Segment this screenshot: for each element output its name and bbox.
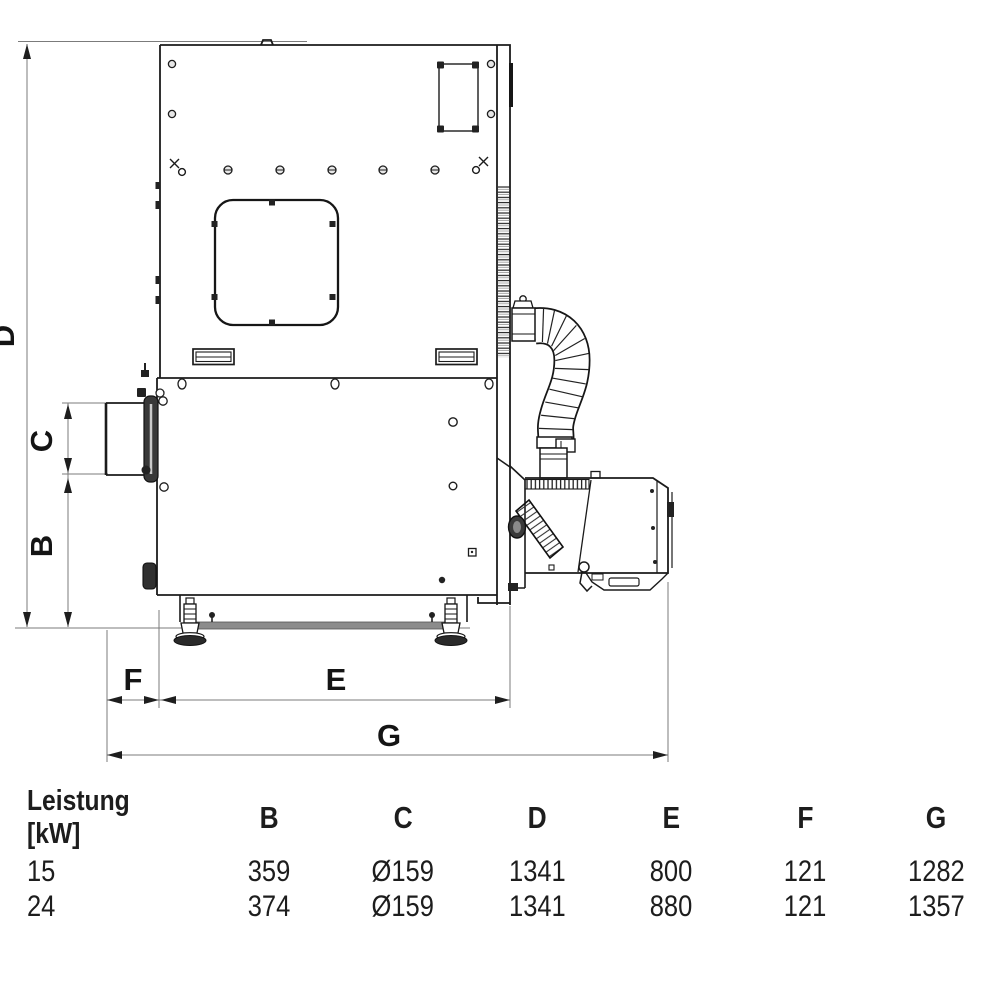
cell-power: 15 <box>0 855 202 889</box>
dim-label-D: D <box>0 325 21 347</box>
table-row-15kw: 15 359 Ø159 1341 800 121 1282 <box>0 854 1000 889</box>
table-header-D: D <box>470 800 604 836</box>
side-ribbed-strip <box>498 186 510 358</box>
power-label: Leistung <box>27 785 130 818</box>
cell-E: 800 <box>604 855 738 889</box>
table-header-G: G <box>872 800 1000 836</box>
inspection-window <box>212 200 339 326</box>
cell-C: Ø159 <box>336 890 470 924</box>
cell-E: 880 <box>604 890 738 924</box>
flexible-flue-hose <box>534 308 589 439</box>
dim-label-E: E <box>326 662 347 697</box>
table-header-C: C <box>336 800 470 836</box>
cell-C: Ø159 <box>336 855 470 889</box>
technical-drawing: D C B F E G <box>0 0 1000 780</box>
cell-power: 24 <box>0 890 202 924</box>
power-unit: [kW] <box>27 818 80 851</box>
cell-B: 359 <box>202 855 336 889</box>
cell-B: 374 <box>202 890 336 924</box>
door-handles <box>193 349 477 365</box>
cell-G: 1282 <box>872 855 1000 889</box>
boiler-outline <box>157 40 510 605</box>
burner-handle <box>509 500 564 558</box>
boiler-dimension-sheet: D C B F E G <box>0 0 1000 1000</box>
cell-D: 1341 <box>470 890 604 924</box>
base-frame <box>180 595 467 629</box>
cell-D: 1341 <box>470 855 604 889</box>
table-row-24kw: 24 374 Ø159 1341 880 121 1357 <box>0 889 1000 924</box>
table-header-B: B <box>202 800 336 836</box>
upper-door-panel <box>168 60 494 175</box>
table-header-power: Leistung [kW] <box>0 785 202 851</box>
table-header-F: F <box>738 800 872 836</box>
cell-G: 1357 <box>872 890 1000 924</box>
dimension-table: Leistung [kW] B C D E F G 15 359 Ø159 13… <box>0 782 1000 924</box>
flue-collar-left <box>106 363 164 589</box>
table-header-row: Leistung [kW] B C D E F G <box>0 782 1000 854</box>
hose-connector <box>537 437 575 478</box>
lower-panel-fasteners <box>159 379 493 583</box>
dim-label-F: F <box>124 662 143 697</box>
flue-fitting-body <box>512 308 535 341</box>
flue-fitting-top <box>513 296 533 308</box>
cell-F: 121 <box>738 890 872 924</box>
dim-label-G: G <box>377 718 401 753</box>
table-header-E: E <box>604 800 738 836</box>
dimension-labels: D C B F E G <box>0 325 401 753</box>
cell-F: 121 <box>738 855 872 889</box>
dim-label-C: C <box>24 430 59 452</box>
dim-label-B: B <box>24 535 59 557</box>
